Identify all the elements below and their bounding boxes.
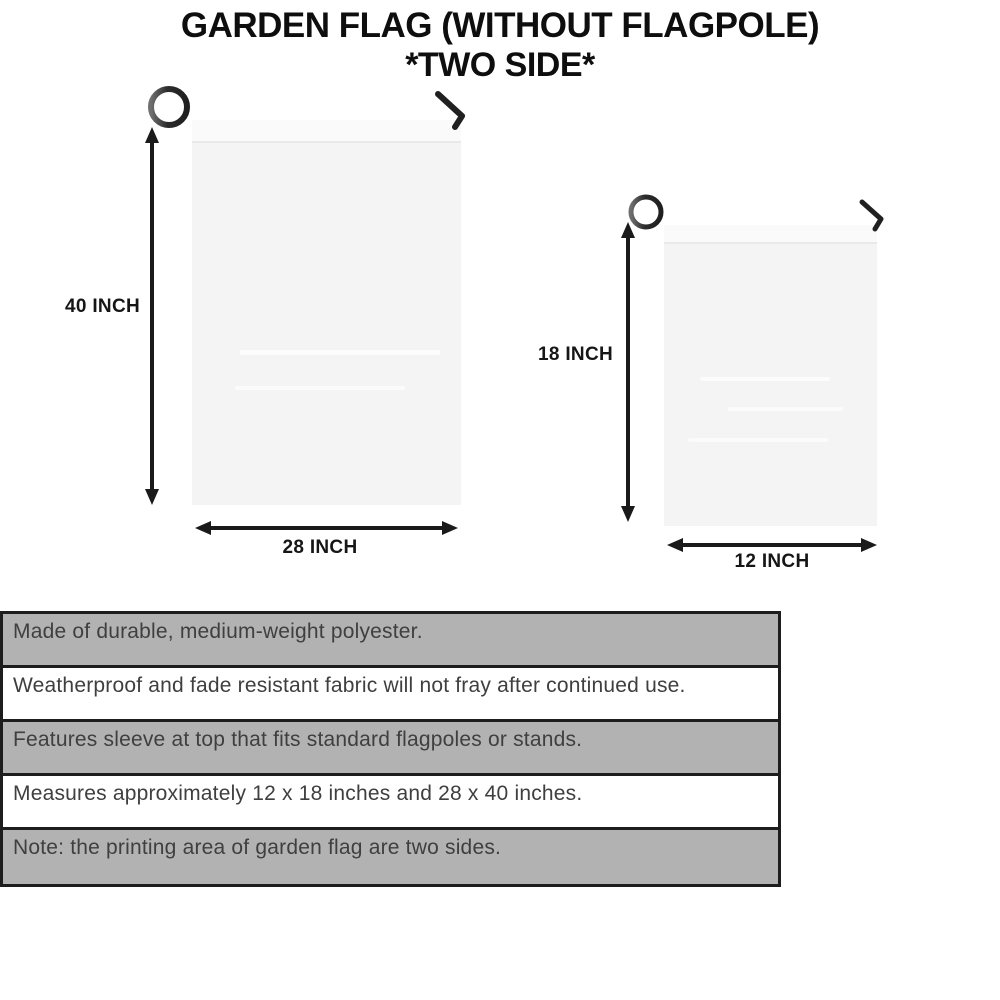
feature-row-sleeve: Features sleeve at top that fits standar… [3,722,778,776]
feature-row-material: Made of durable, medium-weight polyester… [3,614,778,668]
feature-table: Made of durable, medium-weight polyester… [0,611,781,887]
small-flag-panel [664,225,877,526]
feature-row-weatherproof: Weatherproof and fade resistant fabric w… [3,668,778,722]
large-flagpole-loop [151,89,187,125]
large-flag-sleeve [192,120,461,141]
small-flag-hook-icon [862,202,881,229]
small-flag-crease [688,438,828,442]
small-flag-width-label: 12 INCH [697,551,847,573]
small-flag-height-label: 18 INCH [501,344,613,366]
large-flag-assembly [151,89,462,603]
small-flag-crease [728,407,843,411]
large-flag-width-label: 28 INCH [245,537,395,559]
large-flag-crease [235,386,405,390]
small-flag-assembly [628,197,881,603]
large-flag-panel [192,120,461,505]
large-flag-crease [240,350,440,355]
feature-row-note: Note: the printing area of garden flag a… [3,830,778,884]
large-flag-height-label: 40 INCH [28,296,140,318]
small-flag-crease [700,377,830,381]
garden-flag-size-infographic: GARDEN FLAG (WITHOUT FLAGPOLE) *TWO SIDE… [0,0,1000,1000]
small-flagpole-loop [631,197,661,227]
feature-row-measurements: Measures approximately 12 x 18 inches an… [3,776,778,830]
flag-diagram [0,0,1000,610]
small-flag-sleeve [664,225,877,242]
